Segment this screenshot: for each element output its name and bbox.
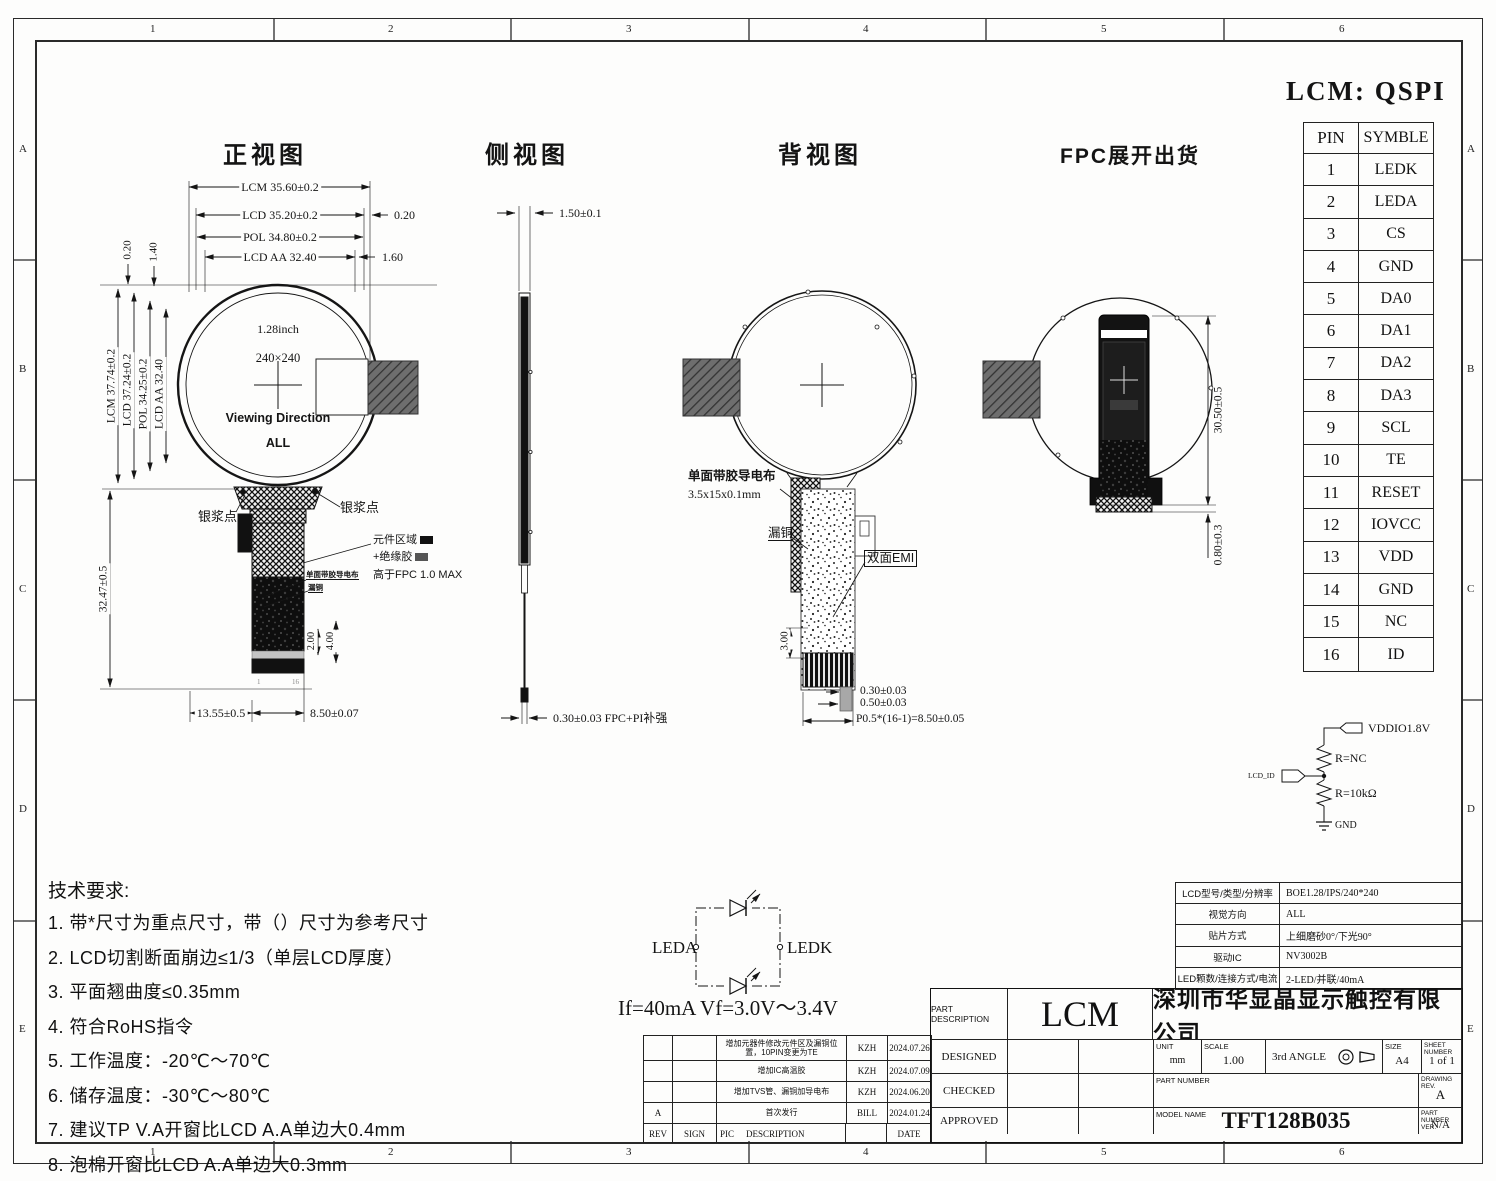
pic-header-text: PIC [720, 1129, 734, 1139]
front-viewing-direction: Viewing Direction [226, 412, 331, 425]
sign-cell [673, 1103, 717, 1123]
desc-cell: 增加元器件修改元件区及漏铜位置，10PIN变更为TE [717, 1036, 847, 1060]
id-circuit-vddio-label: VDDIO1.8V [1368, 722, 1430, 734]
approved-sign-cell [1008, 1108, 1079, 1134]
zone-row-d-left: D [19, 803, 27, 815]
pic-cell: KZH [847, 1082, 888, 1102]
back-dim-pitch: P0.5*(16-1)=8.50±0.05 [856, 714, 964, 726]
tech-item-5: 5. 工作温度：-20℃～70℃ [48, 1047, 488, 1073]
back-emi-label: 双面EMI [864, 550, 917, 567]
size-label: SIZE [1385, 1042, 1402, 1051]
pin-col-header: PIN [1304, 123, 1359, 154]
checked-date-cell [1079, 1074, 1154, 1107]
front-dim-pol-width: POL 34.80±0.2 [241, 231, 319, 243]
back-view-title: 背视图 [778, 144, 862, 168]
id-circuit-gnd-label: GND [1335, 821, 1357, 831]
spec-label: 驱动IC [1176, 947, 1280, 968]
pin-symbol: IOVCC [1359, 509, 1433, 541]
date-cell: 2024.07.09 [888, 1061, 931, 1081]
pin-row-8: 8DA3 [1304, 380, 1433, 412]
front-dim-lcd-height: LCD 37.24±0.2 [122, 352, 134, 428]
zone-row-e-left: E [19, 1023, 26, 1035]
designed-label: DESIGNED [931, 1040, 1008, 1073]
approved-date-cell [1079, 1108, 1154, 1134]
pic-cell: KZH [847, 1036, 888, 1060]
tech-requirements: 技术要求: 1. 带*尺寸为重点尺寸，带（）尺寸为参考尺寸 2. LCD切割断面… [48, 876, 488, 1181]
pin-row-7: 7DA2 [1304, 348, 1433, 380]
fpc-view-title: FPC展开出货 [1060, 146, 1200, 167]
part-number-label: PART NUMBER [1156, 1076, 1210, 1085]
front-resolution: 240×240 [256, 352, 301, 365]
spec-row: LED颗数/连接方式/电流2-LED/并联/40mA [1176, 968, 1462, 989]
zone-col-5-top: 5 [1101, 23, 1107, 35]
front-dim-400: 4.00 [326, 630, 337, 652]
pin-row-2: 2LEDA [1304, 186, 1433, 218]
front-pin-1-mark: 1 [257, 679, 261, 686]
angle-cell: 3rd ANGLE [1266, 1040, 1332, 1073]
revision-row: A 首次发行 BILL 2024.01.24 [644, 1103, 931, 1124]
desc-cell: 首次发行 [717, 1103, 847, 1123]
front-silver-dot-left-label: 银浆点 [198, 510, 237, 523]
side-dim-thickness: 1.50±0.1 [557, 207, 604, 219]
front-dim-140: 1.40 [149, 242, 160, 261]
tech-item-6: 6. 储存温度：-30℃～80℃ [48, 1082, 488, 1108]
front-dim-lcm-height: LCM 37.74±0.2 [106, 347, 118, 425]
front-conductive-cloth-label: 单面带胶导电布 [306, 571, 359, 580]
front-above-fpc-label: 高于FPC 1.0 MAX [373, 570, 462, 581]
revision-header-row: REV SIGN PIC DESCRIPTION DATE [644, 1124, 931, 1143]
id-circuit-lcdid-label: LCD_ID [1248, 772, 1275, 780]
front-dim-850: 8.50±0.07 [308, 707, 361, 719]
front-dim-aa-width: LCD AA 32.40 [241, 251, 318, 263]
front-dim-020-right: 0.20 [392, 209, 417, 221]
sheet-number-value: 1 of 1 [1429, 1055, 1455, 1067]
designed-sign-cell [1008, 1040, 1079, 1073]
sheet-number-cell: SHEET NUMBER 1 of 1 [1422, 1040, 1462, 1073]
back-conductive-cloth-size: 3.5x15x0.1mm [688, 488, 761, 500]
pin-table: PIN SYMBLE 1LEDK 2LEDA 3CS 4GND 5DA0 6DA… [1303, 122, 1434, 672]
back-dim-030: 0.30±0.03 [860, 686, 907, 698]
model-name-label: MODEL NAME [1156, 1110, 1206, 1119]
pic-cell: BILL [847, 1103, 888, 1123]
pin-row-12: 12IOVCC [1304, 509, 1433, 541]
pin-number: 12 [1304, 509, 1359, 541]
pin-number: 5 [1304, 283, 1359, 315]
zone-row-a-left: A [19, 143, 27, 155]
pin-row-15: 15NC [1304, 606, 1433, 638]
tech-item-4: 4. 符合RoHS指令 [48, 1013, 488, 1039]
revision-row: 增加元器件修改元件区及漏铜位置，10PIN变更为TE KZH 2024.07.2… [644, 1036, 931, 1061]
pin-number: 1 [1304, 154, 1359, 186]
designed-date-cell [1079, 1040, 1154, 1073]
pin-row-14: 14GND [1304, 574, 1433, 606]
spec-value: NV3002B [1280, 947, 1462, 968]
pin-row-13: 13VDD [1304, 542, 1433, 574]
pin-symbol: DA1 [1359, 315, 1433, 347]
title-block: PART DESCRIPTION LCM 深圳市华显晶显示触控有限公司 DESI… [930, 988, 1463, 1143]
drawing-rev-cell: DRAWING REV. A [1419, 1074, 1462, 1107]
front-dim-pol-height: POL 34.25±0.2 [138, 357, 150, 432]
rev-cell [644, 1082, 673, 1102]
rev-cell [644, 1061, 673, 1081]
sign-header: SIGN [673, 1124, 717, 1143]
spec-value: 上细磨砂0°/下光90° [1280, 925, 1462, 946]
front-dim-lcd-width: LCD 35.20±0.2 [240, 209, 320, 221]
sheet-title: LCM: QSPI [1286, 78, 1446, 105]
pin-number: 2 [1304, 186, 1359, 218]
spec-table: LCD型号/类型/分辨率BOE1.28/IPS/240*240 视觉方向ALL … [1175, 882, 1463, 990]
zone-row-c-left: C [19, 583, 26, 595]
pin-number: 11 [1304, 477, 1359, 509]
date-cell: 2024.07.26 [888, 1036, 931, 1060]
checked-label: CHECKED [931, 1074, 1008, 1107]
rev-cell [644, 1036, 673, 1060]
pin-symbol: RESET [1359, 477, 1433, 509]
pin-number: 6 [1304, 315, 1359, 347]
pin-number: 4 [1304, 251, 1359, 283]
sign-cell [673, 1082, 717, 1102]
tech-item-7: 7. 建议TP V.A开窗比LCD A.A单边大0.4mm [48, 1116, 488, 1142]
zone-col-1-top: 1 [150, 23, 156, 35]
pin-symbol: DA0 [1359, 283, 1433, 315]
pin-symbol: NC [1359, 606, 1433, 638]
unit-value: mm [1170, 1055, 1186, 1066]
unit-label: UNIT [1156, 1042, 1174, 1051]
insulation-swatch-icon [415, 553, 428, 561]
zone-col-3-top: 3 [626, 23, 632, 35]
pin-symbol: LEDA [1359, 186, 1433, 218]
projection-symbol-cell [1332, 1040, 1383, 1073]
pin-number: 8 [1304, 380, 1359, 412]
scale-label: SCALE [1204, 1042, 1229, 1051]
scale-value: 1.00 [1223, 1053, 1244, 1068]
company-name: 深圳市华显晶显示触控有限公司 [1153, 989, 1462, 1039]
component-area-swatch-icon [420, 536, 433, 544]
size-value: A4 [1395, 1055, 1408, 1067]
third-angle-symbol-icon [1336, 1047, 1378, 1067]
model-name-value: TFT128B035 [1221, 1108, 1350, 1134]
pin-symbol: GND [1359, 251, 1433, 283]
zone-row-b-left: B [19, 363, 26, 375]
spec-row: 视觉方向ALL [1176, 904, 1462, 925]
front-insulation-text: +绝缘胶 [373, 551, 412, 563]
desc-cell: 增加IC高温胶 [717, 1061, 847, 1081]
pin-number: 7 [1304, 348, 1359, 380]
pin-number: 14 [1304, 574, 1359, 606]
zone-row-d-right: D [1467, 803, 1475, 815]
pin-row-1: 1LEDK [1304, 154, 1433, 186]
spec-label: 贴片方式 [1176, 925, 1280, 946]
pin-symbol: GND [1359, 574, 1433, 606]
spec-label: LCD型号/类型/分辨率 [1176, 883, 1280, 904]
spec-row: 驱动ICNV3002B [1176, 947, 1462, 968]
id-circuit-r-top-label: R=NC [1335, 752, 1366, 764]
zone-row-b-right: B [1467, 363, 1474, 375]
pin-table-header: PIN SYMBLE [1304, 123, 1433, 154]
part-ver-cell: PART NUMBER VER. N/A [1419, 1108, 1462, 1134]
tech-item-2: 2. LCD切割断面崩边≤1/3（单层LCD厚度） [48, 944, 488, 970]
front-component-area-text: 元件区域 [373, 534, 417, 546]
pin-number: 9 [1304, 412, 1359, 444]
scale-cell: SCALE 1.00 [1202, 1040, 1266, 1073]
pin-symbol: TE [1359, 445, 1433, 477]
tech-item-8: 8. 泡棉开窗比LCD A.A单边大0.3mm [48, 1151, 488, 1177]
checked-sign-cell [1008, 1074, 1079, 1107]
rev-header: REV [644, 1124, 673, 1143]
front-dim-aa-height: LCD AA 32.40 [154, 357, 166, 431]
drawing-sheet: 1 2 3 4 5 6 1 2 3 4 5 6 A B C D E A B C … [0, 0, 1496, 1181]
pin-row-10: 10TE [1304, 445, 1433, 477]
pic-cell: KZH [847, 1061, 888, 1081]
spec-row: LCD型号/类型/分辨率BOE1.28/IPS/240*240 [1176, 883, 1462, 904]
part-description-value: LCM [1008, 989, 1153, 1039]
zone-col-6-bottom: 6 [1339, 1146, 1345, 1158]
pin-row-16: 16ID [1304, 638, 1433, 670]
pin-row-11: 11RESET [1304, 477, 1433, 509]
side-view-title: 侧视图 [485, 144, 569, 168]
pin-number: 16 [1304, 638, 1359, 670]
front-dim-1355: 13.55±0.5 [195, 707, 248, 719]
pin-symbol: SCL [1359, 412, 1433, 444]
front-dim-lcm-width: LCM 35.60±0.2 [239, 181, 321, 193]
front-viewing-all: ALL [266, 437, 290, 450]
part-ver-label: PART NUMBER VER. [1421, 1110, 1462, 1131]
front-silver-dot-right-label: 银浆点 [340, 501, 379, 514]
zone-row-a-right: A [1467, 143, 1475, 155]
pin-row-4: 4GND [1304, 251, 1433, 283]
id-circuit-r-bottom-label: R=10kΩ [1335, 787, 1377, 799]
sign-cell [673, 1061, 717, 1081]
pin-row-6: 6DA1 [1304, 315, 1433, 347]
size-cell: SIZE A4 [1383, 1040, 1422, 1073]
front-dim-020-left: 0.20 [123, 240, 134, 259]
back-dim-300: 3.00 [780, 629, 791, 652]
front-dim-200: 2.00 [307, 630, 318, 652]
back-dim-050: 0.50±0.03 [860, 698, 907, 710]
rev-cell: A [644, 1103, 673, 1123]
front-insulation-label: +绝缘胶 [373, 552, 428, 563]
pin-number: 13 [1304, 542, 1359, 574]
tech-title: 技术要求: [48, 876, 488, 903]
zone-col-4-top: 4 [863, 23, 869, 35]
revision-row: 增加TVS管、漏铜加导电布 KZH 2024.06.20 [644, 1082, 931, 1103]
pin-symbol: VDD [1359, 542, 1433, 574]
pin-symbol: DA2 [1359, 348, 1433, 380]
pin-number: 3 [1304, 219, 1359, 251]
desc-header: PIC DESCRIPTION [717, 1124, 846, 1143]
pin-symbol: ID [1359, 638, 1433, 670]
spec-value: ALL [1280, 904, 1462, 925]
spec-value: BOE1.28/IPS/240*240 [1280, 883, 1462, 904]
front-dim-160: 1.60 [380, 251, 405, 263]
desc-cell: 增加TVS管、漏铜加导电布 [717, 1082, 847, 1102]
zone-col-6-top: 6 [1339, 23, 1345, 35]
front-pin-16-mark: 16 [292, 679, 299, 686]
pin-row-3: 3CS [1304, 219, 1433, 251]
front-size-inch: 1.28inch [257, 323, 299, 335]
date-header: DATE [887, 1124, 931, 1143]
fpc-dim-080: 0.80±0.3 [1213, 523, 1225, 568]
led-circuit-leda-label: LEDA [652, 939, 697, 956]
pin-row-9: 9SCL [1304, 412, 1433, 444]
front-component-area-label: 元件区域 [373, 535, 433, 546]
zone-col-4-bottom: 4 [863, 1146, 869, 1158]
pin-number: 15 [1304, 606, 1359, 638]
pin-number: 10 [1304, 445, 1359, 477]
drawing-rev-label: DRAWING REV. [1421, 1076, 1462, 1090]
symbol-col-header: SYMBLE [1359, 123, 1433, 154]
spec-label: 视觉方向 [1176, 904, 1280, 925]
front-dim-tail-height: 32.47±0.5 [98, 564, 110, 615]
spec-value: 2-LED/并联/40mA [1280, 968, 1462, 989]
desc-header-text: DESCRIPTION [746, 1129, 805, 1139]
pin-symbol: DA3 [1359, 380, 1433, 412]
zone-row-e-right: E [1467, 1023, 1474, 1035]
revision-row: 增加IC高温胶 KZH 2024.07.09 [644, 1061, 931, 1082]
sheet-number-label: SHEET NUMBER [1424, 1042, 1462, 1056]
front-view-title: 正视图 [223, 144, 307, 168]
pin-row-5: 5DA0 [1304, 283, 1433, 315]
led-circuit-spec: If=40mA Vf=3.0V～3.4V [618, 998, 838, 1019]
sign-cell [673, 1036, 717, 1060]
blank-header [846, 1124, 887, 1143]
zone-col-3-bottom: 3 [626, 1146, 632, 1158]
spec-row: 贴片方式上细磨砂0°/下光90° [1176, 925, 1462, 946]
unit-cell: UNIT mm [1154, 1040, 1202, 1073]
pin-symbol: CS [1359, 219, 1433, 251]
back-conductive-cloth-label: 单面带胶导电布 [688, 470, 776, 483]
tech-item-1: 1. 带*尺寸为重点尺寸，带（）尺寸为参考尺寸 [48, 909, 488, 935]
front-leak-copper-label: 漏铜 [308, 584, 323, 593]
spec-label: LED颗数/连接方式/电流 [1176, 968, 1280, 989]
date-cell: 2024.01.24 [888, 1103, 931, 1123]
model-name-cell: MODEL NAME TFT128B035 [1154, 1108, 1419, 1134]
back-leak-copper-label: 漏铜 [768, 527, 793, 541]
pin-symbol: LEDK [1359, 154, 1433, 186]
tech-item-3: 3. 平面翘曲度≤0.35mm [48, 978, 488, 1004]
revision-table: 增加元器件修改元件区及漏铜位置，10PIN变更为TE KZH 2024.07.2… [643, 1035, 932, 1143]
part-number-cell: PART NUMBER [1154, 1074, 1419, 1107]
zone-col-2-top: 2 [388, 23, 394, 35]
part-description-label: PART DESCRIPTION [931, 989, 1008, 1039]
side-dim-fpc: 0.30±0.03 FPC+PI补强 [551, 712, 669, 724]
approved-label: APPROVED [931, 1108, 1008, 1134]
led-circuit-ledk-label: LEDK [787, 939, 832, 956]
date-cell: 2024.06.20 [888, 1082, 931, 1102]
zone-col-5-bottom: 5 [1101, 1146, 1107, 1158]
zone-row-c-right: C [1467, 583, 1474, 595]
fpc-dim-height: 30.50±0.5 [1213, 385, 1225, 436]
